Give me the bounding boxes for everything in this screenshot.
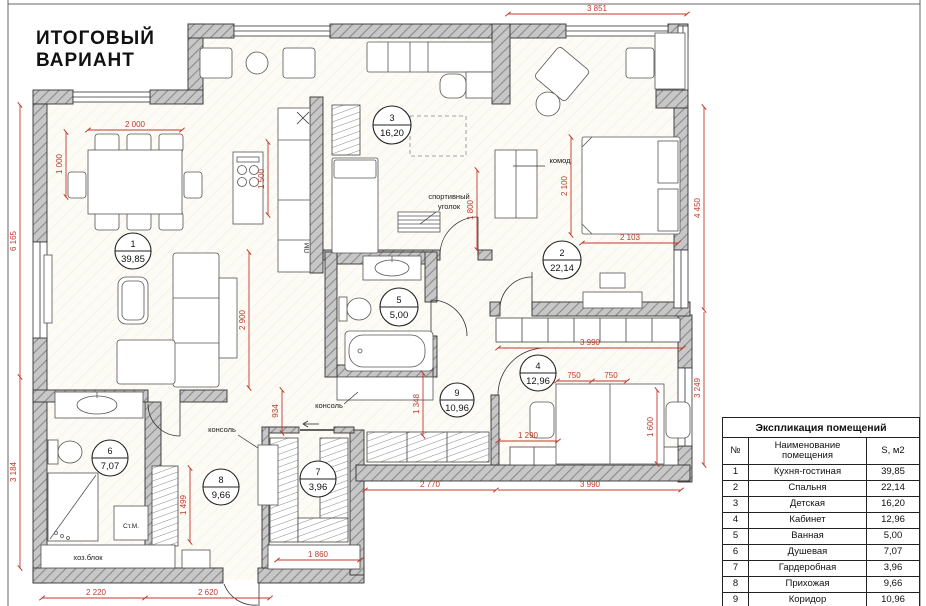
- row-area: 12,96: [867, 513, 919, 529]
- svg-text:6: 6: [107, 446, 112, 456]
- room-label-7: 73,96: [300, 461, 336, 497]
- svg-text:9: 9: [454, 388, 459, 398]
- svg-text:5,00: 5,00: [390, 310, 409, 321]
- dim-2620: 2 620: [145, 588, 270, 598]
- svg-text:750: 750: [567, 371, 581, 380]
- svg-text:2 770: 2 770: [420, 480, 441, 489]
- svg-text:9,66: 9,66: [212, 490, 231, 501]
- svg-text:2 900: 2 900: [238, 309, 247, 330]
- svg-text:2 100: 2 100: [560, 175, 569, 196]
- row-name: Душевая: [749, 545, 867, 561]
- svg-text:22,14: 22,14: [550, 263, 574, 274]
- svg-text:1 860: 1 860: [308, 550, 329, 559]
- row-name: Гардеробная: [749, 561, 867, 577]
- svg-text:3 990: 3 990: [580, 480, 601, 489]
- closet-corridor: [367, 432, 489, 462]
- dim-top-3851: 3 851: [508, 4, 687, 14]
- entry-door: [224, 583, 259, 606]
- row-area: 5,00: [867, 529, 919, 545]
- tv-panel: [44, 255, 52, 323]
- svg-text:2: 2: [559, 248, 564, 258]
- room-label-1: 139,85: [115, 233, 151, 269]
- svg-text:6 165: 6 165: [9, 230, 18, 251]
- col-header-area: S, м2: [867, 438, 919, 465]
- wardrobe-7-bottom: [298, 518, 348, 542]
- svg-text:39,85: 39,85: [121, 254, 145, 265]
- label-dishwasher: ПМ: [304, 243, 311, 253]
- dim-2220: 2 220: [42, 588, 145, 598]
- svg-text:4 450: 4 450: [693, 197, 702, 218]
- room-schedule-table: Экспликация помещений № Наименование пом…: [722, 417, 920, 606]
- svg-text:1 500: 1 500: [257, 168, 266, 189]
- table-title: Экспликация помещений: [723, 418, 919, 438]
- col-header-num: №: [723, 438, 749, 465]
- label-sport-1: спортивный: [428, 192, 469, 201]
- row-num: 7: [723, 561, 749, 577]
- svg-text:750: 750: [604, 371, 618, 380]
- label-hozblok: хоз.блок: [73, 553, 103, 562]
- row-name: Кухня-гостиная: [749, 465, 867, 481]
- room-label-3: 316,20: [373, 106, 411, 144]
- svg-text:3,96: 3,96: [309, 482, 328, 493]
- svg-text:8: 8: [218, 475, 223, 485]
- console-table: [258, 445, 278, 505]
- row-area: 10,96: [867, 593, 919, 606]
- row-area: 22,14: [867, 481, 919, 497]
- row-name: Спальня: [749, 481, 867, 497]
- svg-text:3 851: 3 851: [587, 4, 608, 13]
- svg-text:12,96: 12,96: [526, 376, 550, 387]
- svg-text:1: 1: [130, 239, 135, 249]
- svg-text:2 103: 2 103: [620, 233, 641, 242]
- coffee-table: [118, 277, 148, 324]
- room-label-6: 67,07: [92, 440, 128, 476]
- svg-text:4: 4: [535, 361, 540, 371]
- svg-text:ИТОГОВЫЙ: ИТОГОВЫЙ: [36, 27, 155, 49]
- svg-text:3 249: 3 249: [693, 377, 702, 398]
- svg-text:3 184: 3 184: [9, 461, 18, 482]
- row-num: 1: [723, 465, 749, 481]
- svg-text:1 348: 1 348: [412, 393, 421, 414]
- room-label-9: 910,96: [440, 383, 474, 417]
- label-sport-2: уголок: [438, 202, 461, 211]
- dim-right-3249: 3 249: [693, 312, 704, 465]
- row-num: 4: [723, 513, 749, 529]
- label-konsol-hall: консоль: [208, 425, 236, 434]
- window-right-bedroom: [674, 250, 688, 308]
- room-label-2: 222,14: [543, 241, 581, 279]
- svg-text:934: 934: [271, 404, 280, 418]
- label-konsol-bath: консоль: [315, 401, 343, 410]
- svg-text:1 499: 1 499: [179, 494, 188, 515]
- svg-text:1 800: 1 800: [466, 199, 475, 220]
- sport-corner-ladder: [398, 212, 440, 232]
- sheet-title: ИТОГОВЫЙ ВАРИАНТ: [36, 27, 155, 71]
- row-area: 7,07: [867, 545, 919, 561]
- svg-text:1 000: 1 000: [55, 153, 64, 174]
- row-num: 3: [723, 497, 749, 513]
- row-area: 9,66: [867, 577, 919, 593]
- svg-text:7: 7: [315, 467, 320, 477]
- room-label-5: 55,00: [380, 288, 418, 326]
- row-name: Кабинет: [749, 513, 867, 529]
- utility-niche: [41, 545, 175, 568]
- wardrobe-childroom: [332, 105, 360, 155]
- dim-right-4450: 4 450: [693, 107, 704, 310]
- svg-text:7,07: 7,07: [101, 461, 120, 472]
- svg-text:2 620: 2 620: [198, 588, 219, 597]
- row-num: 5: [723, 529, 749, 545]
- row-num: 2: [723, 481, 749, 497]
- row-num: 9: [723, 593, 749, 606]
- svg-text:2 000: 2 000: [125, 120, 146, 129]
- svg-text:3: 3: [389, 113, 394, 123]
- window-top-b: [566, 26, 668, 36]
- row-name: Ванная: [749, 529, 867, 545]
- window-top-a: [234, 26, 330, 36]
- row-name: Коридор: [749, 593, 867, 606]
- row-area: 3,96: [867, 561, 919, 577]
- row-name: Детская: [749, 497, 867, 513]
- dim-left-6165: 6 165: [9, 105, 20, 377]
- dim-3990-bottom: 3 990: [498, 480, 681, 490]
- svg-text:1 290: 1 290: [518, 431, 539, 440]
- dim-2770: 2 770: [365, 480, 496, 490]
- svg-text:10,96: 10,96: [445, 403, 469, 414]
- svg-text:16,20: 16,20: [380, 128, 404, 139]
- window-top-left-room: [73, 92, 150, 102]
- loggia-left-furniture: [200, 48, 315, 78]
- row-name: Прихожая: [749, 577, 867, 593]
- wardrobe-hallway: [152, 466, 178, 546]
- svg-text:2 220: 2 220: [86, 588, 107, 597]
- svg-text:ВАРИАНТ: ВАРИАНТ: [36, 50, 135, 71]
- room-label-8: 89,66: [203, 469, 239, 505]
- floor-plan-sheet: 3 851 6 165 3 184 4 450 3 249 2 000 1 00…: [0, 0, 926, 606]
- svg-text:3 990: 3 990: [580, 338, 601, 347]
- svg-text:1 600: 1 600: [646, 416, 655, 437]
- dim-left-3184: 3 184: [9, 377, 20, 568]
- row-area: 16,20: [867, 497, 919, 513]
- room-label-4: 412,96: [520, 355, 556, 391]
- row-num: 8: [723, 577, 749, 593]
- bench: [182, 550, 210, 568]
- col-header-name: Наименование помещения: [749, 438, 867, 465]
- label-komod: комод: [549, 156, 571, 165]
- row-area: 39,85: [867, 465, 919, 481]
- svg-text:5: 5: [396, 295, 401, 305]
- row-num: 6: [723, 545, 749, 561]
- label-washing-machine: Ст.М.: [123, 523, 139, 530]
